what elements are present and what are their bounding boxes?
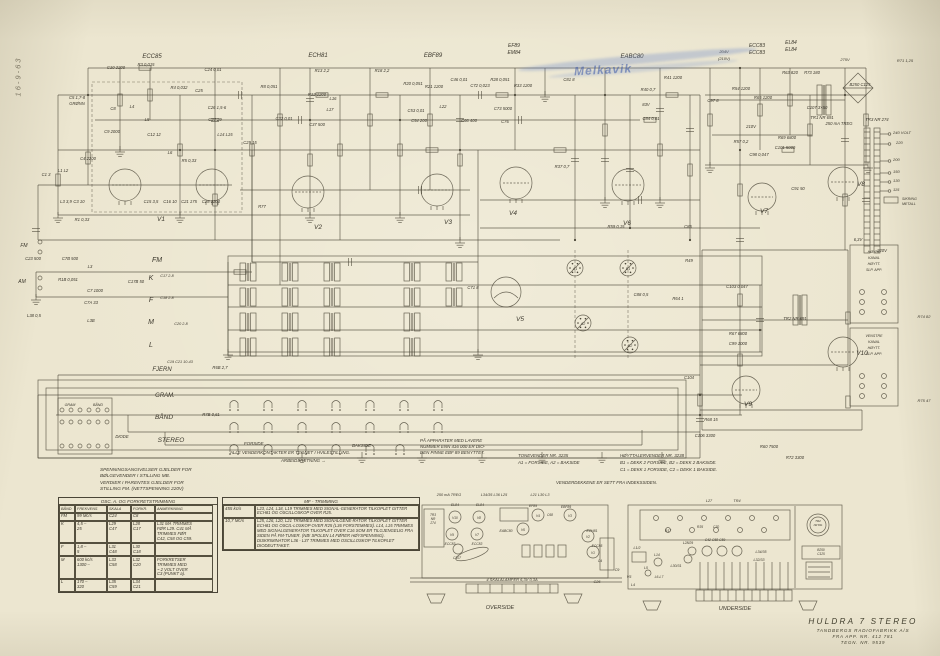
schematic-label: R60 7500 [760,444,779,449]
table-cell: L29 C47 [107,521,131,544]
schematic-label: TR2 [815,519,821,523]
circle [78,408,82,412]
box [558,545,566,557]
coil-can [335,338,341,356]
box [546,545,554,557]
table-cell: L35 C59 [107,579,131,592]
contact-dot [395,453,397,455]
schematic-label: L30/31 [671,564,682,568]
schematic-label: F [149,297,154,304]
schematic-label: AM [17,279,26,285]
schematic-label: L5 [644,566,648,570]
schematic-label: R18 2,2 [375,68,390,73]
schematic-label: R6B 2,7 [212,365,228,370]
schematic-label: EBF89 [561,505,571,509]
junction-dot [699,394,701,396]
wafer-contact [585,318,587,320]
schematic-label: C53 0,01 [408,108,425,113]
schematic-label: 275V [839,57,850,62]
schematic-label: R13 2,2 [315,68,330,73]
coil-can [335,263,341,281]
schematic-label: C12 12 [147,132,161,137]
schematic-label: 150 [893,169,900,174]
switch-contact [230,423,238,426]
coil [732,546,742,556]
circle [888,172,891,175]
schematic-label: L5 [145,117,150,122]
coil-can [240,288,246,306]
table-cell [155,513,213,521]
coil-can [324,263,330,281]
schematic-label: R28 0,051 [490,77,509,82]
circle [702,516,707,521]
schematic-label: C7B 500 [62,256,79,261]
wafer-contact [630,263,632,265]
circle [96,420,100,424]
schematic-label: B250 C125 [850,82,872,87]
schematic-label: C73 5000 [494,106,513,111]
schematic-label: L4 [130,104,135,109]
coil-can [404,313,410,331]
schematic-label: L28/29 [683,541,693,545]
switch-contact [332,423,340,426]
contact-dot [331,431,333,433]
wafer-contact [622,267,624,269]
schematic-label: C18 2-8 [160,296,174,300]
schematic-label: R1B 0,051 [58,277,78,282]
chassis-foot [564,594,582,603]
switch-contact [434,423,442,426]
junction-dot [689,239,691,241]
mf-frequency: 455 kc/s [223,505,255,518]
switch-contact [264,423,272,426]
schematic-label: R37 0,7 [555,164,570,169]
schematic-label: TR3 NR 274 [865,117,889,122]
schematic-label: C91 50 [791,186,805,191]
schematic-label: L3 3,9 [60,199,72,204]
coil-can [415,263,421,281]
wafer-contact [632,340,634,342]
mf-box-grid: MF - TRIMMING455 kc/sL23, L24, L18, L19 … [222,497,420,551]
schematic-label: R65 1200 [754,95,773,100]
schematic-label: C88 0,5 [634,292,649,297]
schematic-label: TR2 NR 691 [783,316,806,321]
coil-can [251,338,257,356]
schematic-label: C37 500 [309,122,326,127]
schematic-label: 200 [892,157,900,162]
schematic-label: C29 15 [243,140,257,145]
circle [888,133,891,136]
schematic-label: L6-L7 [655,575,664,579]
schematic-label: 83V [642,102,651,107]
table-cell: L31 MÅ TRIMMES FØR L29. C41 MÅ TRIMMES F… [155,521,213,544]
schematic-label: C17 2-8 [160,274,174,278]
circle [738,528,743,533]
table-cell: 4,5 – 25 [75,521,107,544]
schematic-label: V1 [157,216,165,223]
schematic-label: R73 180 [804,70,821,75]
contact-dot [331,409,333,411]
schematic-label: V6 [521,528,525,532]
wafer-contact [627,340,629,342]
junction-dot [214,149,216,151]
schematic-label: TR1 NR 691 [810,115,833,120]
contact-dot [297,431,299,433]
schematic-label: C27 29 [208,117,222,122]
circle [750,516,755,521]
wafer-contact [624,344,626,346]
schematic-label: C32 0,01 [276,116,293,121]
schematic-label: L38 0,5 [27,313,42,318]
coil-can [251,288,257,306]
schematic-label: R77 [258,204,266,209]
circle [645,570,651,576]
circle [882,290,887,295]
coil-can [282,263,288,281]
circle [69,420,73,424]
contact-dot [229,409,231,411]
table-cell: 600 kc/s 1300 – [75,556,107,579]
note-bakside: BAKSIDE [352,443,371,448]
contact-dot [305,431,307,433]
schematic-label: C23 500 [25,256,42,261]
chassis-foot [427,594,445,603]
mf-title: MF - TRIMMING [223,498,419,505]
circle [774,516,779,521]
coil-can [324,313,330,331]
circle [69,408,73,412]
circle [882,394,887,399]
schematic-label: R57 0,2 [734,139,749,144]
schematic-label: A2 [580,322,585,326]
schematic-label: L17 [327,107,335,112]
schematic-label: V7 [475,533,479,537]
junction-dot [739,67,741,69]
chassis-foot [643,601,661,610]
schematic-label: FJERN [152,367,172,373]
note-tonevender: TONEVENDER NR. 3235 A1 = FORSIDE, A2 = B… [518,452,580,466]
coil-can [293,338,299,356]
schematic-label: L22 [440,104,448,109]
wafer-contact [625,272,627,274]
box [46,388,678,450]
schematic-label: C106 3300 [695,433,716,438]
circle [69,444,73,448]
schematic-label: C8 [110,106,116,111]
schematic-label: R17 [665,529,671,533]
schematic-label: C103 0,047 [726,284,748,289]
wafer-contact [625,263,627,265]
junction-dot [309,119,311,121]
circle [78,444,82,448]
box [806,562,832,579]
schematic-label: K [149,275,154,282]
mf-frequency: 10,7 Mc/s [223,518,255,550]
table-cell: L34 C21 [131,579,155,592]
contact-dot [263,431,265,433]
box [632,552,646,562]
manufacturer: TANDBERGS RADIOFABRIKK A/S [792,628,934,633]
coil-can [282,338,288,356]
switch-contact [264,401,272,404]
schematic-label: R54 1200 [732,86,751,91]
table-cell: 99 Mc/s [75,513,107,521]
schematic-label: OVERSIDE [486,605,515,611]
circle [690,528,695,533]
junction-dot [514,94,516,96]
schematic-label: C26 1,5-6 [208,105,227,110]
wafer-contact [577,322,579,324]
box [600,538,614,570]
junction-dot [574,239,576,241]
wafer-contact [630,272,632,274]
coil-can [335,288,341,306]
circle [888,160,891,163]
contact-dot [305,409,307,411]
circle [38,240,42,244]
schematic-label: BÅND [155,412,173,421]
circle [860,374,865,379]
schematic-label: V8 [477,516,481,520]
schematic-label: STEREO [158,437,185,444]
circle [654,558,662,566]
circle [882,310,887,315]
contact-dot [297,409,299,411]
coil-can [404,263,410,281]
junction-dot [459,149,461,151]
circle [726,516,731,521]
schematic-label: L6 [168,150,173,155]
schematic-label: R4 0,032 [171,85,189,90]
fm-tuner-outline [92,82,242,212]
contact-dot [441,409,443,411]
table-cell [155,579,213,592]
schematic-label: METALL [902,202,916,206]
schematic-label: C42 C58 C59 [705,538,726,542]
schematic-label: R71 1,25 [897,58,914,63]
schematic-label: C21 175 [181,199,198,204]
magic-eye-target [494,292,518,298]
schematic-label: C46 0,01 [451,77,468,82]
circle [105,420,109,424]
circle [882,300,887,305]
contact-dot [237,431,239,433]
schematic-label: L [149,342,153,349]
wafer-contact [580,318,582,320]
switch-contact [400,401,408,404]
circle [860,394,865,399]
coil [688,547,696,555]
table-cell: L31 C48 [107,543,131,556]
coil-can [282,313,288,331]
schematic-label: 204V [718,49,729,54]
schematic-label: TR4 [733,499,740,503]
circle [87,420,91,424]
note-voltage: SPENNINGSANGIVELSER GJELDER FOR BØLGEVEN… [100,467,192,492]
circle [60,444,64,448]
schematic-label: FM [152,257,162,264]
switch-contact [366,423,374,426]
schematic-label: GRAM [65,403,76,407]
schematic-label: ECC83 [445,542,456,546]
switch-contact [366,401,374,404]
wafer-contact [580,327,582,329]
contact-dot [271,409,273,411]
mf-section: 455 kc/sL23, L24, L18, L19 TRIMMES MED S… [223,505,419,518]
drawing-number: TEGN. NR. 9539 [792,640,934,645]
wafer-contact [572,272,574,274]
schematic-label: C107 [453,556,461,560]
schematic-label: R5 0,33 [182,158,197,163]
schematic-label: R72 3300 [786,455,805,460]
schematic-label: ECC83 [472,542,483,546]
wafer-contact [634,344,636,346]
schematic-label: R1 0,33 [75,217,90,222]
contact-dot [403,453,405,455]
box [534,545,542,557]
box [522,545,530,557]
wafer-contact [587,322,589,324]
switch-contact [230,401,238,404]
contact-dot [229,431,231,433]
schematic-label: EABC80 [499,529,512,533]
schematic-label: C70 [713,525,719,529]
schematic-label: C72 0,023 [470,83,490,88]
junction-dot [759,329,761,331]
circle [888,181,891,184]
schematic-label: C10 2200 [107,65,126,70]
schematic-label: M [148,319,154,326]
table-cell: FM [59,513,75,521]
mf-section: 10,7 Mc/sL25, L26, L20, L21 TRIMMES MED … [223,518,419,550]
table-cell: F [59,543,75,556]
schematic-label: B2 [628,344,632,348]
contact-dot [433,431,435,433]
schematic-label: 4 SKALALAMPER 6,3V 0,3A [486,577,538,582]
coil-can [293,313,299,331]
circle [762,528,767,533]
schematic-label: C81 8 [563,77,575,82]
schematic-label: UNDERSIDE [719,606,752,612]
schematic-label: C1 3 [42,172,52,177]
circle [78,420,82,424]
contact-dot [339,431,341,433]
coil-can [457,263,463,281]
schematic-label: 115 [893,187,900,192]
schematic-label: C7A 33 [84,300,98,305]
note-venderdekkene: VENDERDEKKENE ER SETT FRA INDEKSSIDEN. [556,480,657,485]
box [500,508,528,521]
schematic-label: NR 691 [814,523,823,527]
schematic-label: R20 0,051 [403,81,422,86]
switch-contact [400,423,408,426]
schematic-label: R74 82 [918,314,932,319]
circle [882,374,887,379]
wafer-contact [569,267,571,269]
wafer-contact [627,349,629,351]
schematic-label: EL84 [785,47,797,53]
schematic-label: 250 mA TREG [436,493,462,497]
table-cell: L32 C20 [131,556,155,579]
coil [717,546,727,556]
junction-dot [604,94,606,96]
junction-dot [87,94,89,96]
table-cell: L33 C58 [107,556,131,579]
schematic-label: V5 [516,316,524,323]
contact-dot [237,409,239,411]
schematic-label: L27 [706,499,713,503]
contact-dot [373,453,375,455]
contact-dot [373,409,375,411]
circle [860,384,865,389]
schematic-label: C9 2000 [104,129,121,134]
box [228,256,762,356]
contact-dot [399,409,401,411]
schematic-label: ECC85 [142,54,162,60]
schematic-label: L34/35 L36 L25 [481,493,508,497]
coil [702,546,712,556]
schematic-label: C97 8 [707,98,719,103]
schematic-label: R68 15 [704,417,718,422]
circle [678,516,683,521]
wafer-contact [632,267,634,269]
circle [60,420,64,424]
schematic-label: R64 1 [672,296,683,301]
schematic-label: L14 [654,553,660,557]
coil-can [415,288,421,306]
schematic-label: R59 0,15 [608,224,626,229]
schematic-label: VENSTRE [866,334,884,338]
alignment-table-grid: OSC. A. OG FORKRETSTRIMMINGBÅNDFREKVENSS… [58,497,218,593]
contact-dot [271,431,273,433]
schematic-label: ECC83 [749,50,765,56]
schematic-label: L21 L30 L3 [530,493,550,497]
schematic-label: ECH81 [308,53,327,59]
schematic-label: 130 [893,178,900,183]
schematic-label: HØYTT. [868,262,881,266]
table-cell: C24 [107,513,131,521]
schematic-label: C104 [684,375,695,380]
contact-dot [433,409,435,411]
schematic-label: R41 1200 [664,75,683,80]
schematic-label: V3 [568,514,572,518]
schematic-label: V4 [509,210,517,217]
table-cell: M [59,556,75,579]
schematic-label: 250 mA TREG [824,121,853,126]
chassis-foot [799,601,817,610]
schematic-label: HØYTT. [868,346,881,350]
coil-can [415,338,421,356]
schematic-label: V2 [314,224,322,231]
schematic-label: L34/35 [756,550,767,554]
schematic-label: DIODE [115,434,128,439]
schematic-label: ECC83 [749,43,765,49]
schematic-label: B1 [626,267,630,271]
coil-can [404,288,410,306]
schematic-label: GRØNN [69,101,86,106]
schematic-label: V10 [452,516,458,520]
schematic-label: KANAL [868,340,880,344]
coil-can [446,288,452,306]
schematic-label: EL84 [476,503,484,507]
circle [105,444,109,448]
schematic-label: BÅND [93,402,103,407]
schematic-label: C15 3,5 [144,199,159,204]
schematic-label: C26 [594,580,602,584]
schematic-label: L16 [330,96,338,101]
contact-dot [407,431,409,433]
note-contacts: ALLE VENDERKONTAKTER ER TEGNET I HVILEST… [230,450,350,455]
